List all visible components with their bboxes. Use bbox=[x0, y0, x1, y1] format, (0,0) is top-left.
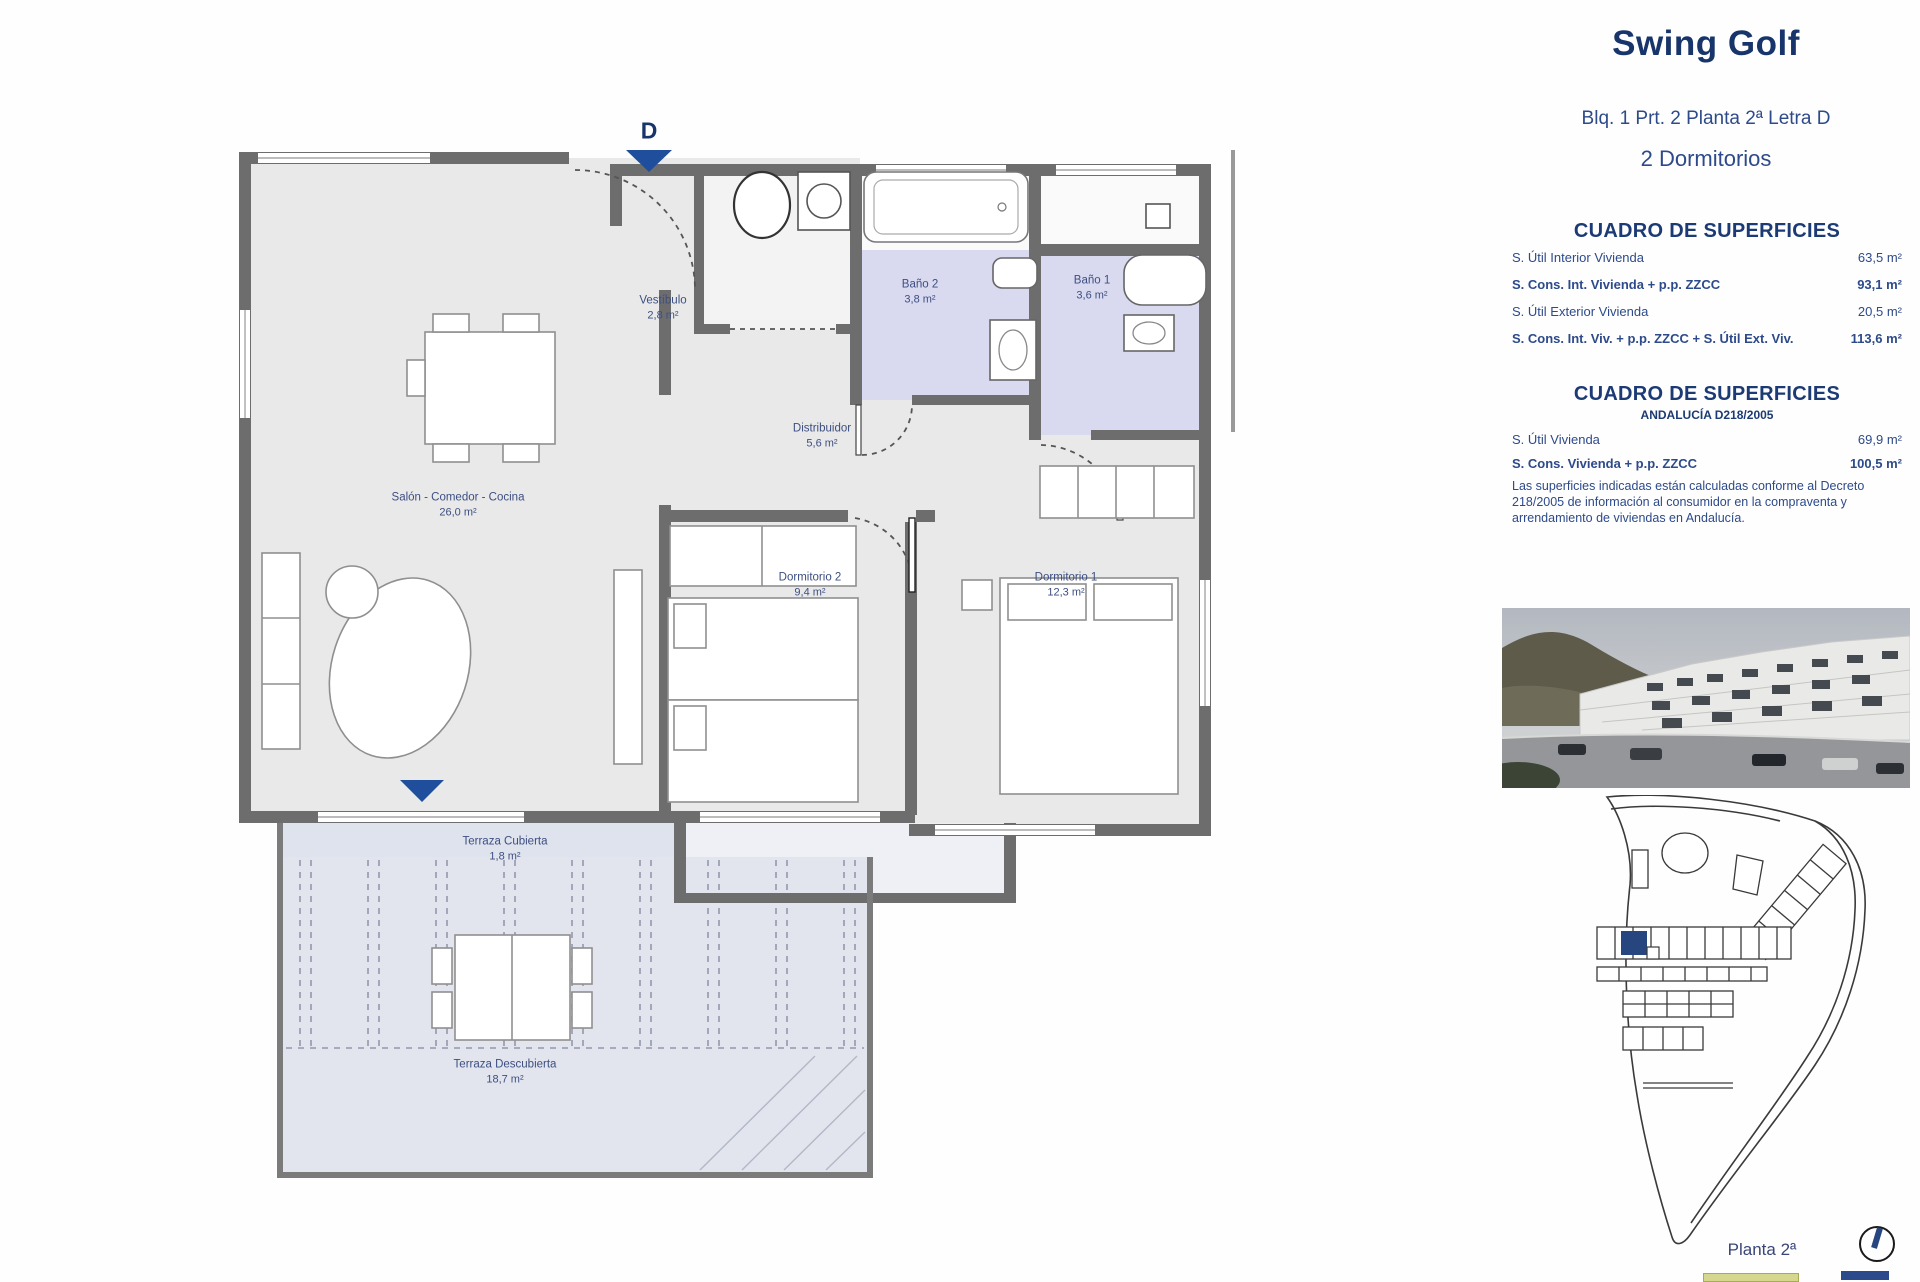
bedrooms-count: 2 Dormitorios bbox=[1500, 146, 1912, 172]
room-area: 2,8 m² bbox=[639, 309, 686, 323]
sink-icon bbox=[990, 320, 1036, 380]
row-value: 63,5 m² bbox=[1858, 250, 1902, 265]
table-row: S. Útil Exterior Vivienda 20,5 m² bbox=[1512, 304, 1902, 331]
surface-table-heading: CUADRO DE SUPERFICIES bbox=[1512, 220, 1902, 243]
room-label-bano2: Baño 2 3,8 m² bbox=[902, 278, 938, 307]
site-unit-detail bbox=[1647, 947, 1659, 959]
room-label-salon: Salón - Comedor - Cocina 26,0 m² bbox=[392, 491, 525, 520]
surface-table2-subheading: ANDALUCÍA D218/2005 bbox=[1512, 408, 1902, 422]
bathtub-icon bbox=[1124, 255, 1206, 305]
room-name: Vestíbulo bbox=[639, 294, 686, 309]
table-row: S. Cons. Vivienda + p.p. ZZCC 100,5 m² bbox=[1512, 456, 1902, 480]
laundry-sink-icon bbox=[734, 172, 790, 238]
tv-unit-icon bbox=[614, 570, 642, 764]
room-area: 5,6 m² bbox=[793, 437, 851, 451]
row-label: S. Útil Vivienda bbox=[1512, 432, 1600, 447]
row-value: 93,1 m² bbox=[1857, 277, 1902, 292]
room-name: Baño 1 bbox=[1074, 274, 1110, 289]
surface-table2-heading: CUADRO DE SUPERFICIES bbox=[1512, 383, 1902, 406]
room-area: 26,0 m² bbox=[392, 506, 525, 520]
room-area: 1,8 m² bbox=[462, 850, 547, 864]
room-name: Salón - Comedor - Cocina bbox=[392, 491, 525, 506]
surface-table2: S. Útil Vivienda 69,9 m² S. Cons. Vivien… bbox=[1512, 432, 1902, 480]
north-compass-icon bbox=[1855, 1222, 1899, 1266]
entrance-letter: D bbox=[641, 118, 658, 145]
room-label-vestibulo: Vestíbulo 2,8 m² bbox=[639, 294, 686, 323]
row-label: S. Cons. Int. Vivienda + p.p. ZZCC bbox=[1512, 277, 1720, 292]
table-row: S. Útil Vivienda 69,9 m² bbox=[1512, 432, 1902, 456]
room-name: Dormitorio 1 bbox=[1035, 571, 1098, 586]
room-area: 3,8 m² bbox=[902, 293, 938, 307]
row-label: S. Cons. Int. Viv. + p.p. ZZCC + S. Útil… bbox=[1512, 331, 1793, 346]
table-row: S. Cons. Int. Viv. + p.p. ZZCC + S. Útil… bbox=[1512, 331, 1902, 358]
sink-icon bbox=[1124, 315, 1174, 351]
floor-level-label: Planta 2ª bbox=[1722, 1240, 1802, 1260]
page-title: Swing Golf bbox=[1500, 24, 1912, 64]
room-area: 9,4 m² bbox=[779, 586, 842, 600]
row-value: 113,6 m² bbox=[1851, 331, 1902, 346]
bathtub-icon bbox=[864, 172, 1028, 242]
room-area: 12,3 m² bbox=[1035, 586, 1098, 600]
row-label: S. Útil Interior Vivienda bbox=[1512, 250, 1644, 265]
unit-reference: Blq. 1 Prt. 2 Planta 2ª Letra D bbox=[1500, 108, 1912, 130]
table-row: S. Cons. Int. Vivienda + p.p. ZZCC 93,1 … bbox=[1512, 277, 1902, 304]
room-name: Terraza Cubierta bbox=[462, 835, 547, 850]
room-area: 3,6 m² bbox=[1074, 289, 1110, 303]
room-label-terraza-cubierta: Terraza Cubierta 1,8 m² bbox=[462, 835, 547, 864]
room-name: Baño 2 bbox=[902, 278, 938, 293]
surface-table: S. Útil Interior Vivienda 63,5 m² S. Con… bbox=[1512, 250, 1902, 358]
room-name: Distribuidor bbox=[793, 422, 851, 437]
site-buildings bbox=[1597, 833, 1846, 1088]
room-label-bano1: Baño 1 3,6 m² bbox=[1074, 274, 1110, 303]
room-name: Terraza Descubierta bbox=[454, 1058, 557, 1073]
shelf-icon bbox=[262, 553, 300, 749]
washer-icon bbox=[798, 172, 850, 230]
room-label-dormitorio2: Dormitorio 2 9,4 m² bbox=[779, 571, 842, 600]
logo-cutoff bbox=[1841, 1271, 1889, 1280]
table-row: S. Útil Interior Vivienda 63,5 m² bbox=[1512, 250, 1902, 277]
legend-box-cutoff bbox=[1703, 1273, 1799, 1282]
row-value: 69,9 m² bbox=[1858, 432, 1902, 447]
site-unit-highlight bbox=[1621, 931, 1647, 955]
row-label: S. Útil Exterior Vivienda bbox=[1512, 304, 1648, 319]
row-value: 100,5 m² bbox=[1850, 456, 1902, 471]
site-pool bbox=[1662, 833, 1708, 873]
legal-note: Las superficies indicadas están calculad… bbox=[1512, 478, 1904, 526]
row-label: S. Cons. Vivienda + p.p. ZZCC bbox=[1512, 456, 1697, 471]
room-label-terraza-descubierta: Terraza Descubierta 18,7 m² bbox=[454, 1058, 557, 1087]
room-name: Dormitorio 2 bbox=[779, 571, 842, 586]
row-value: 20,5 m² bbox=[1858, 304, 1902, 319]
utility-box-icon bbox=[1146, 204, 1170, 228]
room-label-distribuidor: Distribuidor 5,6 m² bbox=[793, 422, 851, 451]
wardrobe-icon bbox=[1040, 466, 1194, 518]
toilet-icon bbox=[993, 258, 1037, 288]
room-area: 18,7 m² bbox=[454, 1073, 557, 1087]
section-line bbox=[1231, 150, 1235, 432]
floorplan-brochure-page: { "header": { "title": "Swing Golf", "su… bbox=[0, 0, 1920, 1280]
site-plan bbox=[1575, 795, 1875, 1265]
dining-table-icon bbox=[425, 332, 555, 444]
building-photo bbox=[1502, 608, 1910, 788]
room-label-dormitorio1: Dormitorio 1 12,3 m² bbox=[1035, 571, 1098, 600]
floorplan-drawing bbox=[0, 0, 1240, 1280]
